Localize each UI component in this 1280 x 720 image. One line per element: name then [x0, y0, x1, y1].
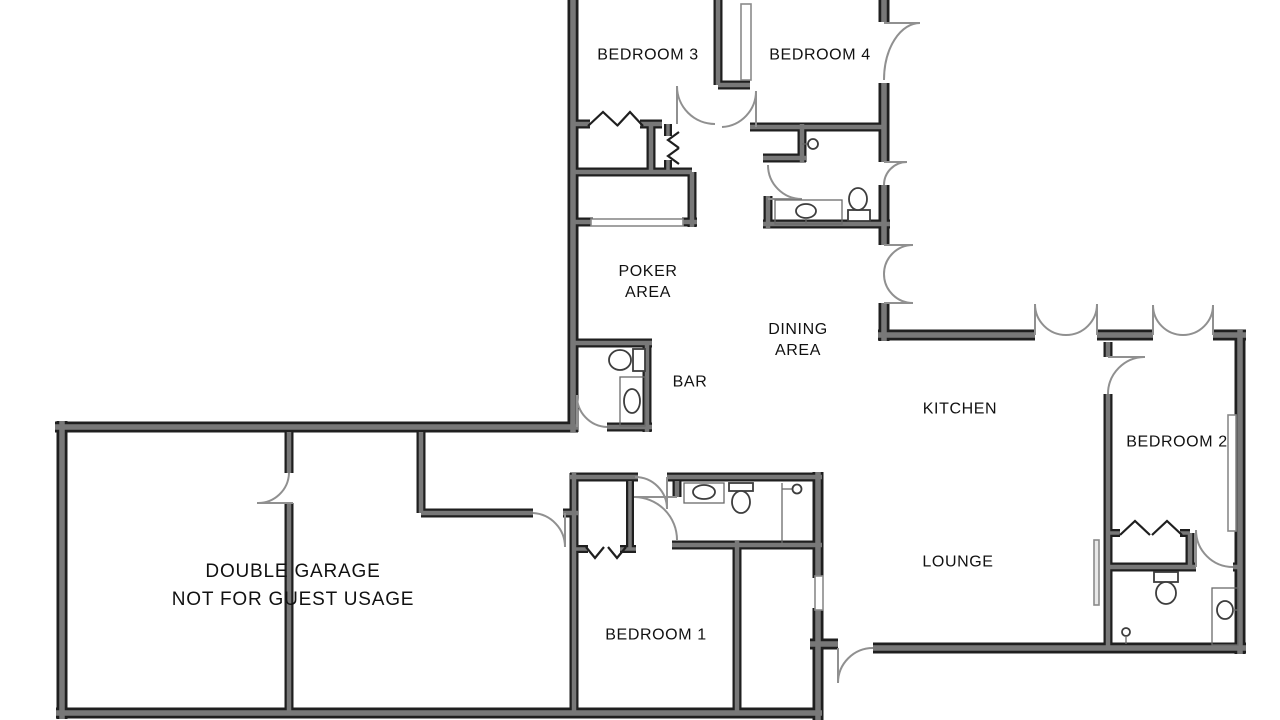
door-arc-bedroom-1-ensuite — [634, 497, 677, 540]
door-arc-garage-vestibule — [533, 513, 565, 547]
sink-icon — [1212, 588, 1238, 645]
window-bedroom2-east — [1228, 415, 1236, 531]
room-label-double-garage: DOUBLE GARAGE NOT FOR GUEST USAGE — [172, 558, 415, 614]
room-label-poker-area: POKER AREA — [618, 261, 677, 303]
sink-icon — [684, 483, 724, 503]
room-label-bedroom-1: BEDROOM 1 — [605, 625, 706, 646]
window-lounge-west — [815, 576, 823, 610]
french-doors-kitchen-east — [1153, 305, 1213, 335]
french-doors-kitchen-west — [1035, 304, 1097, 335]
door-arc-bar-bathroom — [577, 395, 607, 427]
room-label-bedroom-3: BEDROOM 3 — [597, 45, 698, 66]
pocket-door-leaf — [1094, 540, 1099, 605]
door-arc-bedroom-2-ensuite — [1196, 530, 1233, 567]
floor-plan-page: { "canvas": {"width": 1280, "height": 72… — [0, 0, 1280, 720]
toilet-icon — [729, 483, 753, 513]
room-label-bedroom-2: BEDROOM 2 — [1126, 432, 1227, 453]
sink-icon — [620, 377, 645, 426]
door-arc-bedroom-3 — [677, 86, 715, 124]
door-arc-bedroom-4-hall — [722, 91, 756, 127]
toilet-icon — [609, 349, 645, 371]
door-arc-bathroom-exterior — [884, 162, 907, 185]
bifold-hall-closet — [668, 132, 679, 164]
toilet-icon — [848, 188, 870, 221]
door-arc-main-entry — [838, 648, 873, 683]
shower-partition — [782, 483, 802, 543]
toilet-icon — [1154, 572, 1178, 604]
door-arc-garage-divider — [257, 473, 293, 503]
room-label-bedroom-4: BEDROOM 4 — [769, 45, 870, 66]
windows-layer — [591, 4, 1236, 610]
bifold-bedroom-3-closet — [588, 112, 643, 126]
bifold-bedroom-2-closet — [1120, 521, 1182, 535]
room-label-dining-area: DINING AREA — [768, 319, 828, 361]
door-arc-bedroom-4-exterior — [884, 23, 920, 80]
door-handle-icon — [1122, 628, 1130, 644]
window-storage-room — [591, 219, 683, 226]
hall-cabinet — [741, 4, 751, 80]
french-doors-dining-east — [884, 245, 913, 303]
room-label-kitchen: KITCHEN — [923, 399, 997, 420]
door-arc-bedroom-2 — [1108, 357, 1145, 394]
door-arc-hall-bathroom — [768, 165, 802, 199]
door-arc-bedroom-1 — [635, 477, 667, 509]
room-label-bar: BAR — [673, 372, 708, 393]
room-label-lounge: LOUNGE — [922, 552, 993, 573]
